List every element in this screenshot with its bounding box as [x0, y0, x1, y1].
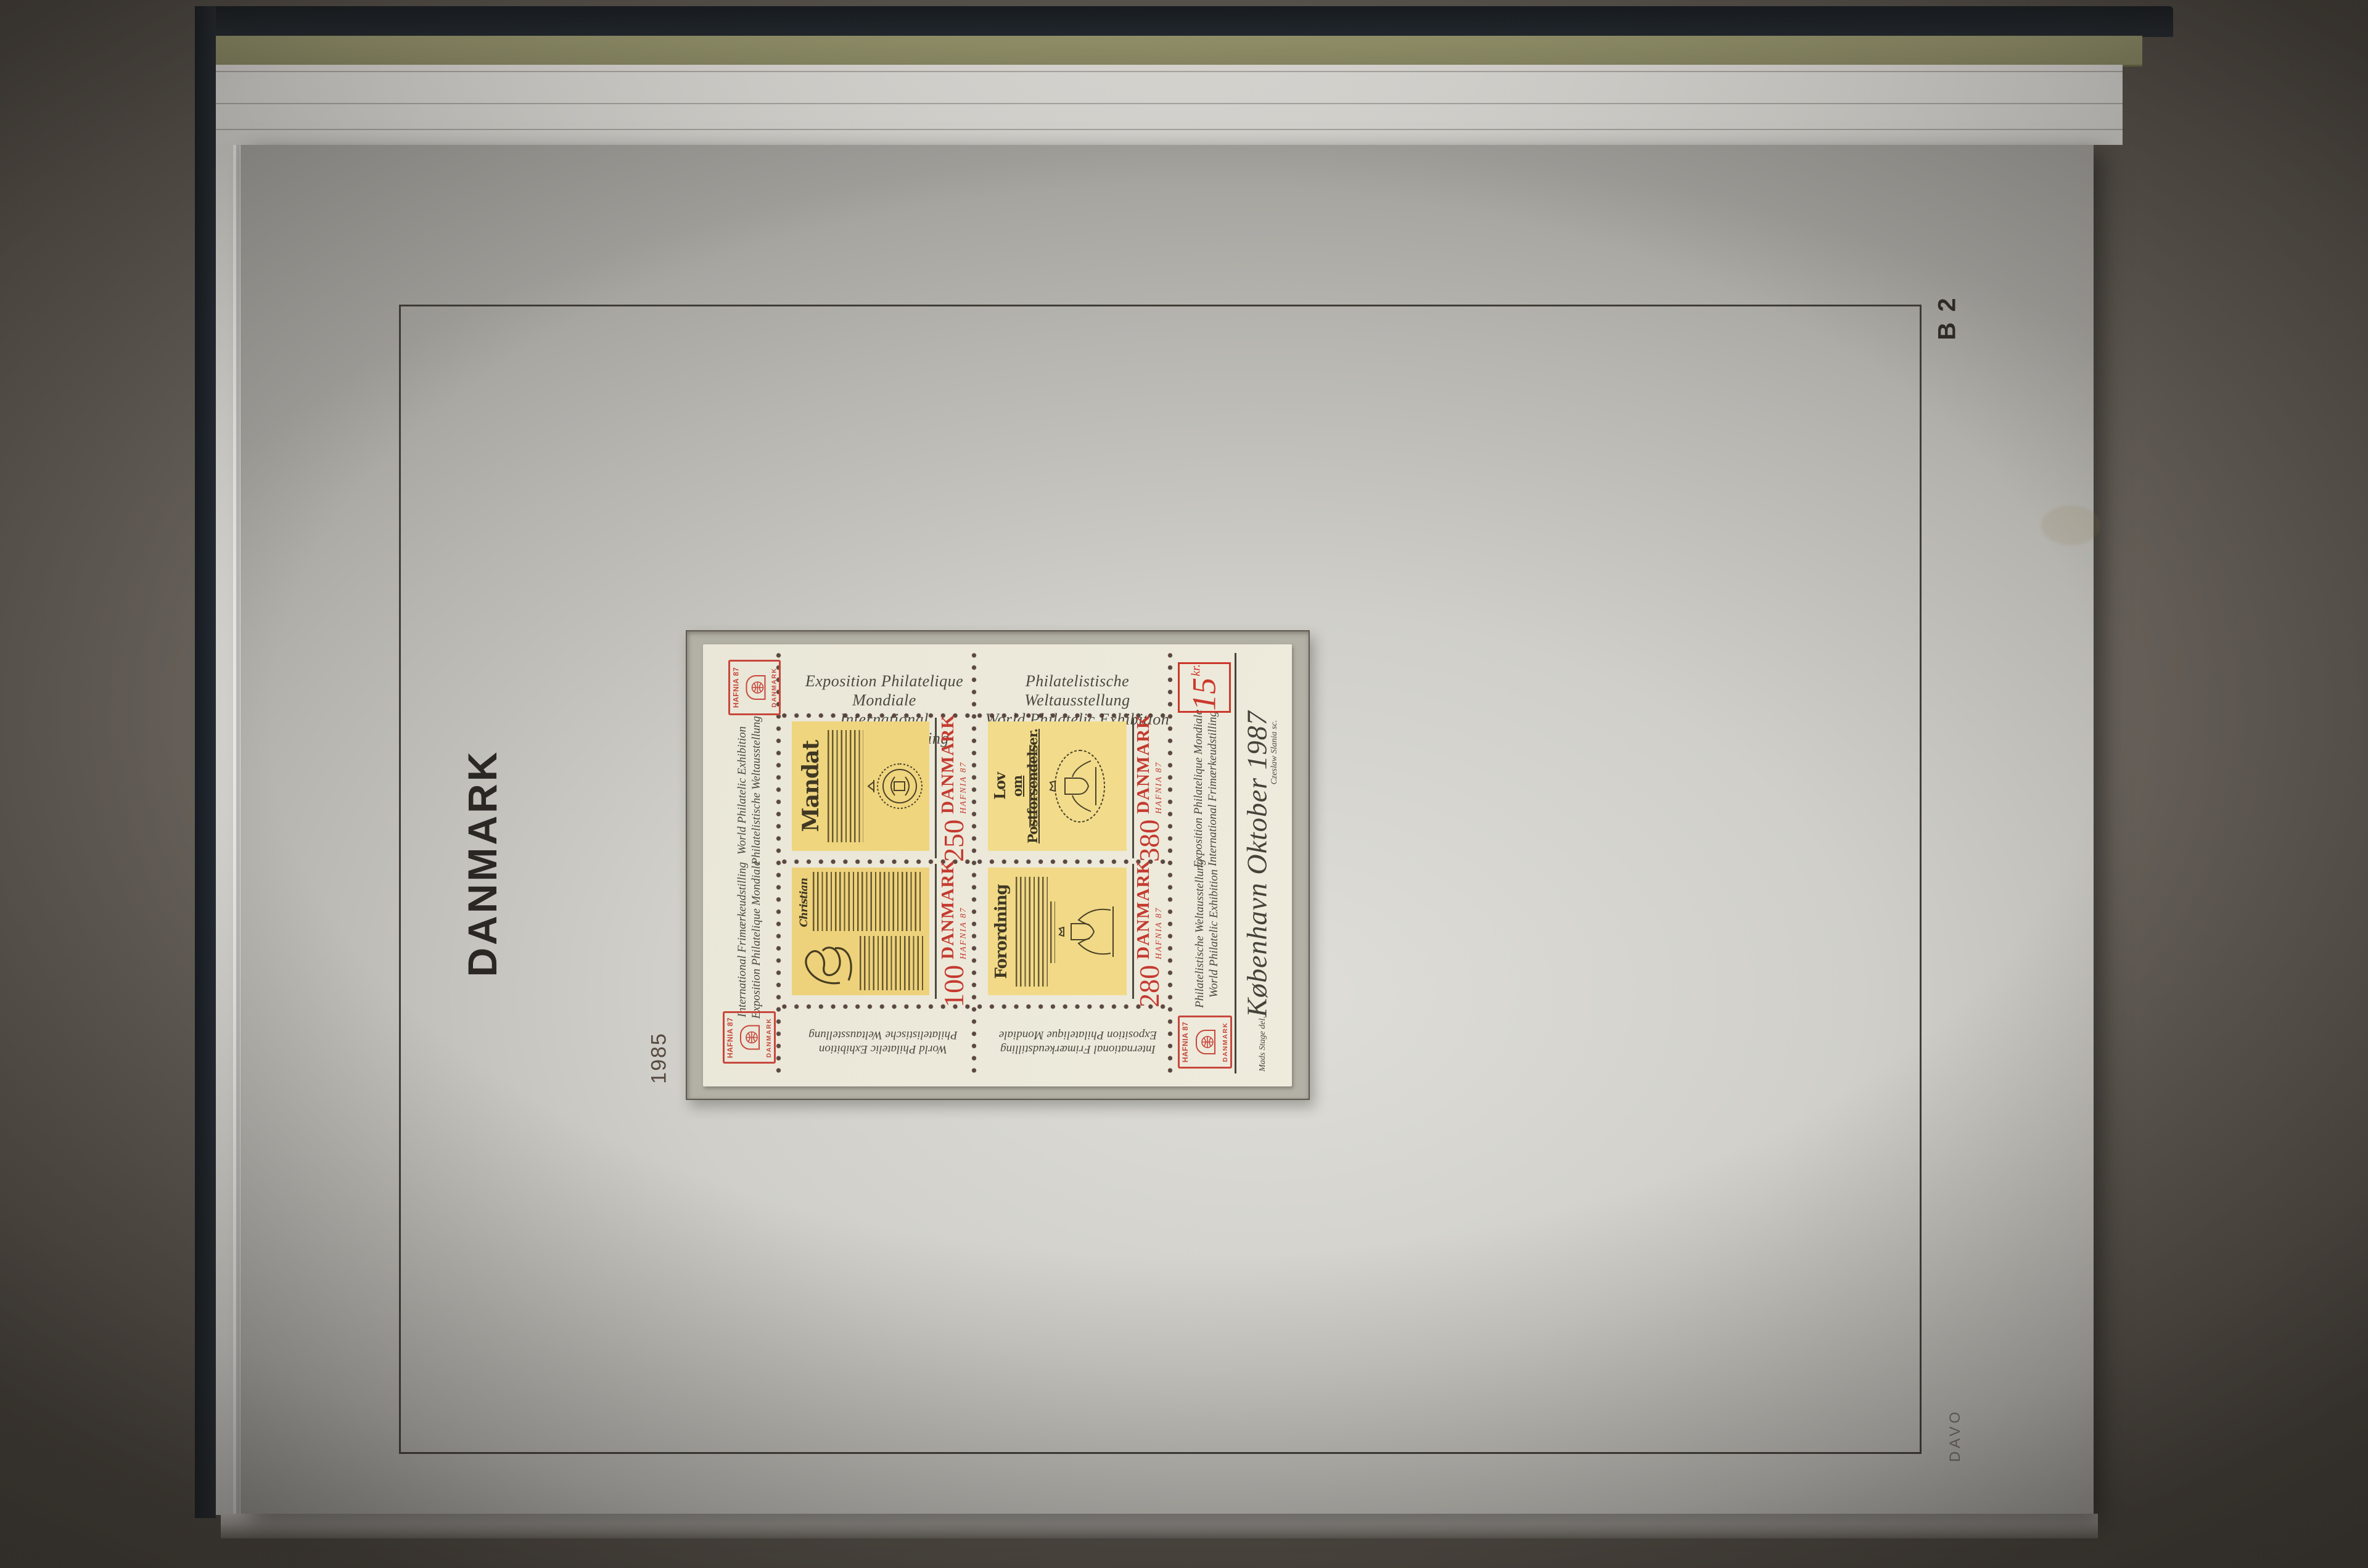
- margin-line: International Frimærkeudstilling: [979, 1042, 1177, 1056]
- margin-rule-line: [1235, 653, 1236, 1073]
- margin-line: World Philatelic Exhibition: [784, 1042, 982, 1056]
- paper-stain: [2041, 506, 2100, 545]
- logo-country-text: DANMARK: [770, 668, 778, 708]
- document-date-line: [1050, 901, 1055, 963]
- document-title: Forordning: [992, 868, 1011, 995]
- page-stack-left-edges: [216, 145, 242, 1515]
- document-text-lines: [828, 730, 863, 842]
- margin-line: Exposition Philatelique Mondiale: [749, 861, 763, 1019]
- stamp-document-mandat: Mandat: [792, 721, 929, 851]
- country-name: DANMARK: [939, 714, 957, 814]
- document-title: Lov: [991, 723, 1009, 850]
- hafnia-logo-bottom-left: HAFNIA 87 DANMARK: [723, 1011, 776, 1064]
- document-title: Christian: [798, 871, 810, 935]
- perforation-row: [778, 1004, 1170, 1009]
- margin-line: International Frimærkeudstilling: [1206, 710, 1220, 868]
- logo-exhibition-text: HAFNIA 87: [726, 1017, 734, 1057]
- value-number: 280: [1135, 965, 1164, 1008]
- document-content: Lov om Postforsendelser.: [990, 723, 1125, 850]
- album-cover-top-edge: [202, 6, 2173, 37]
- logo-country-text: DANMARK: [1222, 1022, 1229, 1062]
- price-unit: kr.: [1190, 664, 1204, 676]
- margin-line: Exposition Philatelique Mondiale: [1191, 710, 1206, 868]
- price-box: 15 kr.: [1178, 662, 1231, 713]
- margin-line: Philatelistische Weltausstellung: [784, 1028, 982, 1042]
- perforation-row: [778, 713, 1170, 718]
- document-text-lines: [860, 936, 924, 990]
- perforation-row: [778, 859, 1170, 864]
- country-name: DANMARK: [1135, 860, 1153, 959]
- value-number: 100: [940, 965, 968, 1008]
- document-title: Mandat: [798, 723, 824, 850]
- margin-line: Exposition Philatelique Mondiale: [979, 1028, 1177, 1042]
- header-line: Exposition Philatelique Mondiale: [786, 671, 983, 710]
- value-number: 380: [1135, 819, 1164, 862]
- photo-scene: DANMARK B 2 1985 DAVO Exposition Philate…: [0, 0, 2368, 1568]
- page-stack-bottom-edges: [221, 1514, 2098, 1538]
- souvenir-sheet: Exposition Philatelique Mondiale Interna…: [703, 644, 1292, 1086]
- stamp-document-forordning: Forordning: [988, 868, 1127, 995]
- country-name: DANMARK: [1135, 714, 1153, 814]
- logo-exhibition-text: HAFNIA 87: [731, 667, 740, 708]
- stamp-divider-line: [935, 864, 937, 999]
- album-cover-spine-edge: [195, 6, 216, 1518]
- document-text-lines: [1016, 877, 1048, 987]
- coat-of-arms-emblem: [1046, 747, 1108, 825]
- stamp-document-christian: Christian: [792, 868, 929, 995]
- document-content: Mandat: [793, 723, 929, 850]
- brand-label-text: DAVO: [1947, 1409, 1964, 1462]
- signature-flourish-emblem: [797, 937, 855, 991]
- document-text-lines: [1029, 745, 1039, 827]
- globe-icon: [740, 1025, 760, 1050]
- document-content: Christian: [793, 868, 929, 995]
- album-page: DANMARK B 2 1985 DAVO Exposition Philate…: [240, 145, 2094, 1514]
- stamp-mount: Exposition Philatelique Mondiale Interna…: [686, 630, 1310, 1100]
- stamp-divider-line: [935, 718, 937, 858]
- page-title-label: DANMARK: [459, 750, 506, 977]
- exhibition-name: HAFNIA 87: [1154, 761, 1164, 814]
- exhibition-name: HAFNIA 87: [959, 761, 969, 814]
- globe-icon: [746, 675, 765, 700]
- margin-line: International Frimærkeudstilling: [735, 861, 749, 1019]
- stamp-document-lov: Lov om Postforsendelser.: [988, 721, 1127, 851]
- page-stack-edges: [215, 65, 2123, 145]
- exhibition-name: HAFNIA 87: [959, 907, 969, 959]
- page-code-label: B 2: [1934, 296, 1962, 340]
- page-edge-line: [215, 129, 2123, 130]
- year-label-text: 1985: [647, 1032, 672, 1084]
- margin-line: World Philatelic Exhibition: [735, 716, 749, 865]
- royal-seal-emblem: [866, 758, 925, 814]
- coat-of-arms-lions-emblem: [1056, 892, 1120, 972]
- hafnia-logo-top-left: HAFNIA 87 DANMARK: [728, 660, 781, 715]
- price-value: 15: [1190, 678, 1220, 711]
- value-number: 250: [940, 819, 968, 862]
- margin-line: Philatelistische Weltausstellung: [1193, 859, 1207, 1008]
- margin-line: World Philatelic Exhibition: [1207, 859, 1221, 1008]
- country-name: DANMARK: [939, 860, 957, 959]
- document-text-lines: [813, 872, 924, 931]
- exhibition-name: HAFNIA 87: [1154, 907, 1164, 959]
- hafnia-logo-bottom-right: HAFNIA 87 DANMARK: [1178, 1016, 1232, 1069]
- page-edge-line: [215, 71, 2123, 72]
- logo-country-text: DANMARK: [765, 1017, 773, 1057]
- header-line: Philatelistische Weltausstellung: [979, 671, 1176, 710]
- globe-icon: [1196, 1030, 1215, 1054]
- margin-line: Philatelistische Weltausstellung: [749, 716, 763, 865]
- interleaf-page-edge: [216, 36, 2142, 67]
- document-content: Forordning: [990, 868, 1125, 995]
- logo-exhibition-text: HAFNIA 87: [1181, 1022, 1190, 1062]
- page-edge-line: [215, 103, 2123, 104]
